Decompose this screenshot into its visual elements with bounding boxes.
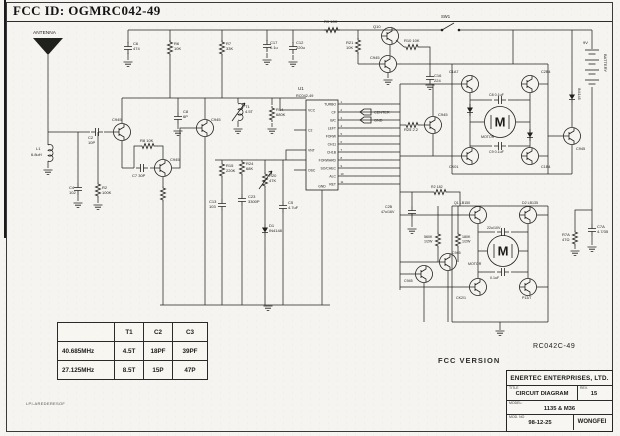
component-label: 1 [341, 100, 343, 104]
component-label: 3300P [248, 199, 260, 204]
title-block: ENERTEC ENTERPRISES, LTD. TITLE CIRCUIT … [506, 370, 613, 432]
component-label: 6 [341, 140, 343, 144]
component-label: C945 [452, 251, 461, 255]
resistor [432, 190, 448, 195]
component-label: 10K [346, 45, 353, 50]
ground-symbol [174, 131, 183, 135]
component-label: P13/7 [522, 296, 531, 300]
ground-symbol [74, 203, 83, 207]
mod-date: 98-12-25 [507, 420, 573, 427]
resistor [356, 38, 361, 54]
component-label: M [498, 244, 509, 259]
resistor [270, 106, 275, 122]
component-label: GND [374, 119, 383, 123]
component-label: RET [329, 182, 336, 186]
transistor [520, 207, 531, 223]
ground-symbol [124, 62, 133, 66]
transistor [155, 160, 166, 176]
component-label: 220K [226, 168, 236, 173]
ground-symbol [44, 170, 53, 174]
component-label: TURBO [324, 102, 336, 106]
component-label: R25 2.2 [404, 127, 419, 132]
component-label: 224 [434, 78, 441, 83]
wire [420, 47, 430, 64]
switch-contact [441, 29, 444, 32]
transistor [382, 28, 393, 44]
capacitor [174, 112, 182, 124]
resistor [456, 232, 461, 248]
component-label: 0.1uF [490, 276, 500, 280]
frequency-table: T1 C2 C3 40.685MHz 4.5T 18PF 39PF 27.125… [57, 322, 208, 380]
ground-symbol [263, 60, 272, 64]
wire [575, 210, 592, 230]
component-label: MOTOR [481, 135, 495, 139]
wire [134, 146, 140, 168]
capacitor [408, 206, 416, 218]
component-label: 474 [133, 46, 140, 51]
component-label: MOTOR [468, 262, 482, 266]
scan-side-note: LPI-AREDERESOF [26, 401, 65, 406]
component-label: 33K [226, 46, 233, 51]
switch-contact [458, 29, 461, 32]
component-label: C945 [404, 279, 413, 283]
board-code-label: RC042C-49 [533, 343, 575, 350]
capacitor [494, 96, 506, 104]
component-label: 8 [341, 156, 343, 160]
capacitor [497, 268, 509, 276]
component-label: 4.7uF [288, 205, 299, 210]
resistor [168, 40, 173, 56]
freq-cell: 27.125MHz [58, 361, 115, 380]
transistor [564, 128, 575, 144]
resistor [404, 45, 420, 50]
transistor [470, 279, 481, 295]
component-label: CH1B [327, 150, 337, 154]
component-label: R9 10K [324, 19, 338, 24]
component-label: CK01 [449, 165, 459, 169]
component-label: C945 [370, 55, 380, 60]
component-label: 6P [183, 114, 188, 119]
component-label: C1B4 [541, 165, 551, 169]
component-label: C945 [576, 147, 585, 151]
resistor [161, 186, 166, 202]
component-label: Q10 [373, 24, 381, 29]
component-label: U1 [298, 86, 304, 91]
resistor [220, 40, 225, 56]
capacitor [426, 72, 434, 84]
diode [527, 133, 533, 138]
component-label: 100K [102, 190, 112, 195]
component-label: VCC [308, 108, 316, 112]
component-label: 47Ω [562, 237, 569, 242]
component-label: 5 [341, 132, 343, 136]
component-label: C8 0.1uF [489, 93, 505, 97]
component-label: ALC [329, 174, 336, 178]
ground-symbol [496, 331, 505, 335]
title-cell: TITLE CIRCUIT DIAGRAM [507, 386, 578, 400]
component-label: C945 [211, 117, 221, 122]
component-label: C2 [308, 128, 312, 132]
component-label: D2 LB135 [522, 201, 538, 205]
c2-cell: 15P [144, 361, 173, 380]
labels-layer: ANTENNAC6474R610KR733KC170.1uC12220uR9 1… [31, 14, 609, 300]
component-label: R8 10K [140, 138, 154, 143]
component-label: C945 [112, 117, 122, 122]
model-value: 1135 & M36 [507, 406, 612, 413]
component-label: ANTENNA [33, 30, 57, 36]
table-row: T1 C2 C3 [58, 323, 208, 342]
transistor [462, 148, 473, 164]
component-label: 9 [341, 164, 343, 168]
c2-cell: 18PF [144, 342, 173, 361]
component-label: CENTER [374, 111, 390, 115]
ground-symbol [408, 229, 417, 233]
schematic-page: FCC ID: OGMRC042-49 ANTENNAC6474R610KR73… [0, 0, 620, 436]
capacitor [124, 42, 132, 54]
resistor [96, 182, 101, 198]
wire [286, 150, 294, 160]
component-label: 3 [341, 116, 343, 120]
component-label: CH11 [328, 142, 337, 146]
component-label: R2 182 [431, 185, 443, 189]
resistor [436, 232, 441, 248]
component-label: SW1 [441, 14, 451, 19]
component-label: 1/2W [462, 240, 471, 244]
rev-cell: REV. 15 [578, 386, 610, 400]
component-label: IN4148 [577, 88, 581, 100]
component-label: C1A7 [449, 70, 459, 74]
component-label: R10 10K [404, 38, 420, 43]
component-label: 6.8uH [31, 152, 42, 157]
table-header-t1: T1 [115, 323, 144, 342]
component-label: 1/2W [424, 240, 433, 244]
capacitor [279, 201, 287, 213]
ground-symbol [571, 251, 580, 255]
component-label: Q1 LB150 [454, 201, 470, 205]
c3-cell: 39PF [173, 342, 208, 361]
transistor [440, 254, 451, 270]
resistor [240, 160, 245, 176]
ground-symbol [384, 80, 393, 84]
ground-symbol [264, 306, 273, 310]
component-label: M [495, 115, 506, 130]
component-label: 4.7/35 [597, 229, 609, 234]
component-label: 47u/16V [381, 210, 395, 214]
wires-layer [48, 23, 592, 330]
diagram-title: CIRCUIT DIAGRAM [507, 391, 577, 398]
component-label: C2B4 [541, 70, 551, 74]
model-cell: MODEL: 1135 & M36 [507, 401, 612, 415]
wire [172, 128, 196, 168]
rev-value: 15 [578, 391, 610, 398]
ground-symbol [234, 129, 243, 133]
ground-symbol [588, 247, 597, 251]
component-label: 10K [174, 46, 181, 51]
resistor [220, 162, 225, 178]
component-label: FORW [326, 134, 337, 138]
component-label: C9 0.1uF [489, 150, 505, 154]
component-label: IN4148 [269, 228, 283, 233]
switch-blade [442, 23, 454, 30]
resistor [573, 230, 578, 246]
transistor [380, 56, 391, 72]
component-label: 180K [462, 235, 471, 239]
component-label: LEFT [328, 126, 336, 130]
resistor [140, 144, 156, 149]
component-label: SO/CHEC [321, 166, 337, 170]
table-row: 27.125MHz 8.5T 15P 47P [58, 361, 208, 380]
transistor [425, 117, 436, 133]
component-label: 2 [341, 108, 343, 112]
transistor [520, 279, 531, 295]
component-label: 22u/10V [487, 226, 501, 230]
ground-symbol [289, 62, 298, 66]
company-name: ENERTEC ENTERPRISES, LTD. [507, 371, 612, 386]
freq-cell: 40.685MHz [58, 342, 115, 361]
component-label: CK2/1 [456, 296, 466, 300]
ground-symbol [268, 129, 277, 133]
component-label: L1 [36, 146, 41, 151]
component-label: 10P [88, 140, 95, 145]
component-label: 0.1u [270, 45, 278, 50]
transistor [522, 148, 533, 164]
table-row: 40.685MHz 4.5T 18PF 39PF [58, 342, 208, 361]
mod-no-cell: MOD. NO 98-12-25 [507, 415, 574, 430]
c3-cell: 47P [173, 361, 208, 380]
table-header-blank [58, 323, 115, 342]
component-label: 220u [296, 45, 305, 50]
component-label: 47K [269, 178, 276, 183]
component-label: 4.5T [245, 109, 254, 114]
inductor [48, 144, 53, 161]
transistor [114, 124, 125, 140]
resistor [324, 28, 340, 33]
component-label: C945 [170, 157, 180, 162]
component-label: 560K [424, 235, 433, 239]
ground-symbol [94, 205, 103, 209]
components-layer [33, 28, 599, 336]
diode [569, 95, 575, 100]
component-label: 102 [69, 190, 76, 195]
transistor [462, 76, 473, 92]
component-label: FORWARD [319, 158, 337, 162]
component-label: OSC [308, 168, 316, 172]
component-label: 7 [341, 148, 343, 152]
component-label: C2B [385, 205, 393, 209]
component-label: GND [318, 185, 326, 189]
component-label: 68K [246, 166, 253, 171]
engineer-name: WONGFEI [574, 415, 610, 430]
component-label: BATTERY [603, 54, 608, 72]
component-label: CF [331, 110, 336, 114]
transistor [416, 266, 427, 282]
t1-cell: 8.5T [115, 361, 144, 380]
component-label: VNT [308, 148, 315, 152]
fcc-version-label: FCC VERSION [438, 356, 500, 365]
capacitor [494, 142, 506, 150]
t1-cell: 4.5T [115, 342, 144, 361]
component-label: C945 [438, 112, 448, 117]
transistor [197, 120, 208, 136]
component-label: 4 [341, 124, 343, 128]
transistor [470, 207, 481, 223]
transistor [522, 76, 533, 92]
table-header-c3: C3 [173, 323, 208, 342]
component-label: 9V [583, 40, 588, 45]
capacitor [238, 194, 246, 206]
antenna-icon [33, 38, 63, 55]
capacitor [588, 224, 596, 236]
component-label: C7 30P [132, 173, 146, 178]
table-header-c2: C2 [144, 323, 173, 342]
component-label: B/C [330, 118, 336, 122]
diode [467, 108, 473, 113]
component-label: 103 [209, 204, 216, 209]
resistor [263, 172, 268, 188]
capacitor [218, 199, 226, 211]
capacitor [136, 164, 148, 172]
component-label: 680K [276, 112, 286, 117]
component-label: 10 [341, 172, 345, 176]
component-label: RC042-49 [296, 94, 313, 98]
component-label: 11 [341, 180, 344, 184]
wire [156, 146, 163, 159]
diode [262, 228, 268, 233]
